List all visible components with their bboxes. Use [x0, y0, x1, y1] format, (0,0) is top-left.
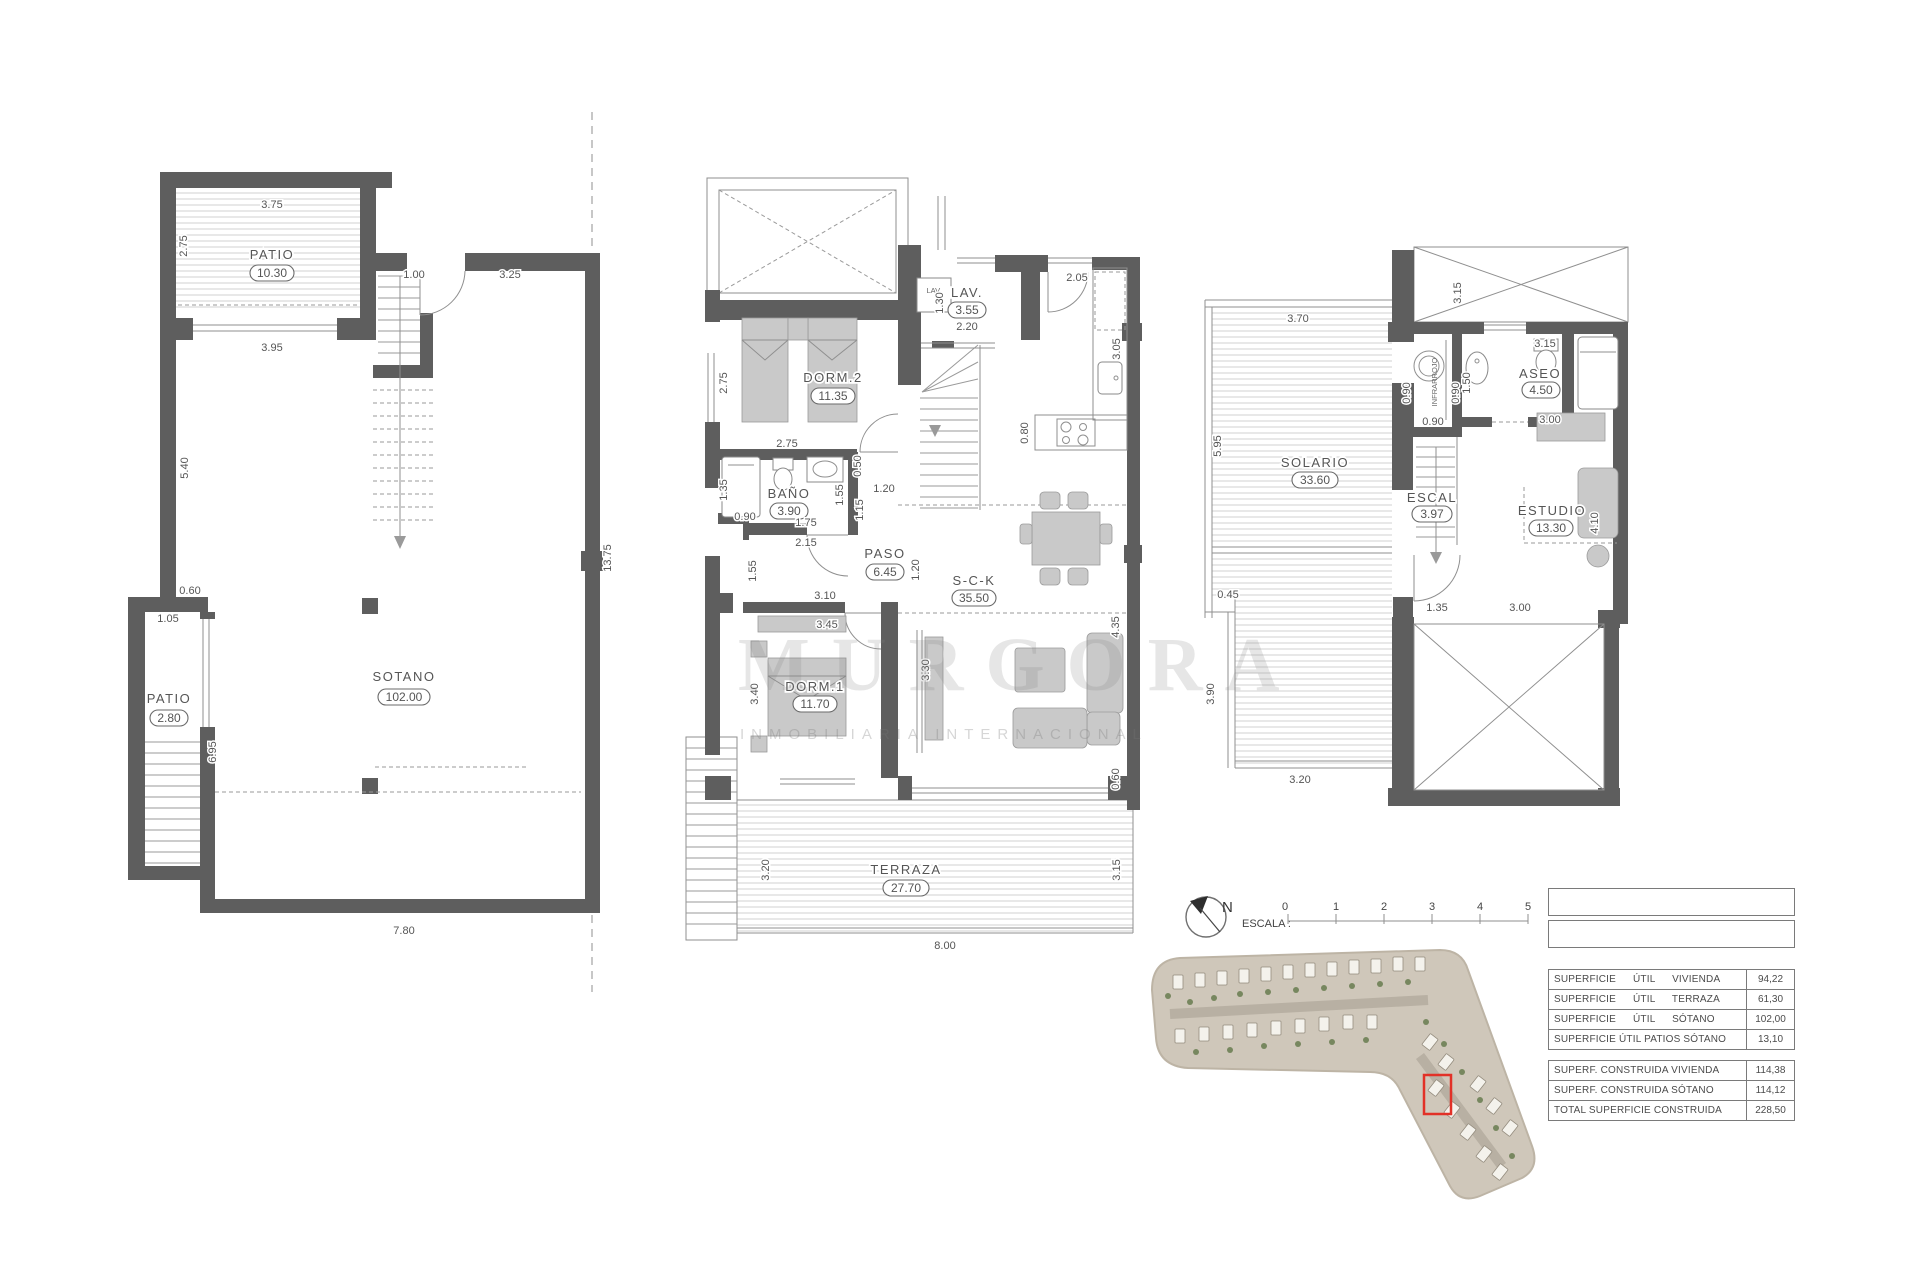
dim-label: 3.40	[749, 683, 761, 704]
sofa	[1013, 708, 1087, 748]
table-row: SUPERFICIE ÚTIL TERRAZA 61,30	[1549, 989, 1794, 1009]
table-row: SUPERF. CONSTRUIDA VIVIENDA 114,38	[1549, 1061, 1794, 1080]
room-value-paso: 6.45	[873, 565, 897, 579]
dim-label: 1.15	[854, 499, 866, 520]
dim-label: 2.75	[178, 235, 190, 256]
site-plan-area	[1152, 950, 1534, 1198]
row-value: 102,00	[1746, 1010, 1794, 1029]
row-label: SUPERFICIE ÚTIL SÓTANO	[1549, 1010, 1746, 1029]
dim-label: 0.50	[852, 455, 864, 476]
dim-label: 1.35	[1426, 602, 1447, 614]
room-value-sck: 35.50	[959, 591, 989, 605]
room-value-patio2: 2.80	[157, 711, 181, 725]
room-value-lav: 3.55	[955, 303, 979, 317]
baja-stairs	[920, 343, 995, 510]
floor-plan-planta-alta: INFRARROJO SOLARIO	[1205, 247, 1628, 806]
row-label: SUPERFICIE ÚTIL VIVIENDA	[1549, 970, 1746, 989]
dim-label: 13.75	[602, 544, 614, 572]
dim-label: 1.75	[795, 517, 816, 529]
scale-tick: 4	[1477, 901, 1483, 913]
built-area-table: SUPERF. CONSTRUIDA VIVIENDA 114,38 SUPER…	[1548, 1060, 1795, 1121]
dim-label: 3.15	[1452, 282, 1464, 303]
dim-label: 8.00	[934, 940, 955, 952]
row-value: 228,50	[1746, 1101, 1794, 1120]
row-value: 61,30	[1746, 990, 1794, 1009]
dim-label: 3.95	[261, 342, 282, 354]
room-value-estudio: 13.30	[1536, 521, 1566, 535]
sotano-guides	[215, 767, 581, 792]
room-label-escal: ESCAL	[1407, 490, 1457, 505]
dim-label: 3.75	[261, 199, 282, 211]
room-value-escal: 3.97	[1420, 507, 1444, 521]
compass-and-scale: N ESCALA : 0 1 2 3 4 5	[1186, 896, 1531, 937]
scale-tick: 1	[1333, 901, 1339, 913]
scale-tick: 0	[1282, 901, 1288, 913]
room-value-sotano: 102.00	[386, 690, 423, 704]
room-value-patio1: 10.30	[257, 266, 287, 280]
dim-label: 3.15	[1534, 338, 1555, 350]
row-label: SUPERFICIE ÚTIL TERRAZA	[1549, 990, 1746, 1009]
bed	[1578, 337, 1618, 409]
terraza-steps	[686, 748, 737, 924]
floor-plan-sotano: PATIO 10.30 SOTANO 102.00 PATIO 2.80 3.7…	[128, 112, 614, 992]
table-row: TOTAL SUPERFICIE CONSTRUIDA 228,50	[1549, 1100, 1794, 1120]
table-row: SUPERF. CONSTRUIDA SÓTANO 114,12	[1549, 1080, 1794, 1100]
dim-label: 0.90	[1422, 416, 1443, 428]
room-label-bano: BAÑO	[768, 486, 811, 501]
room-label-dorm2: DORM.2	[803, 370, 863, 385]
row-label: SUPERF. CONSTRUIDA SÓTANO	[1549, 1081, 1746, 1100]
floor-plan-sheet: PATIO 10.30 SOTANO 102.00 PATIO 2.80 3.7…	[0, 0, 1920, 1280]
scale-bar	[1288, 914, 1528, 924]
void-outline	[707, 178, 908, 305]
dim-label: 3.15	[1111, 859, 1123, 880]
stairs-direction-arrow	[394, 536, 406, 549]
dim-label: 2.15	[795, 537, 816, 549]
dim-label: 2.05	[1066, 272, 1087, 284]
scale-tick: 2	[1381, 901, 1387, 913]
room-label-patio1: PATIO	[250, 247, 295, 262]
dining-table	[1032, 512, 1100, 565]
dim-label: 1.00	[403, 269, 424, 281]
sotano-door-arc	[420, 271, 465, 315]
coffee-table	[1015, 648, 1065, 692]
dim-label: 0.90	[1401, 382, 1413, 403]
nightstand	[751, 736, 767, 752]
room-label-sck: S-C-K	[953, 573, 996, 588]
dim-label: 3.70	[1287, 313, 1308, 325]
dim-label: 4.35	[1110, 616, 1122, 637]
dim-label: 0.60	[1110, 768, 1122, 789]
room-label-terraza: TERRAZA	[870, 862, 941, 877]
dim-label: 3.90	[1205, 683, 1217, 704]
dim-label: 3.00	[1509, 602, 1530, 614]
dim-label: 7.80	[393, 925, 414, 937]
dim-label: 1.55	[747, 560, 759, 581]
dim-label: 3.30	[920, 659, 932, 680]
row-value: 114,12	[1746, 1081, 1794, 1100]
dim-label: 3.05	[1111, 338, 1123, 359]
alta-windows	[1457, 325, 1526, 545]
sotano-windows	[193, 325, 337, 727]
pouf	[1587, 545, 1609, 567]
dim-label: 3.20	[760, 859, 772, 880]
row-label: SUPERF. CONSTRUIDA VIVIENDA	[1549, 1061, 1746, 1080]
room-label-solario: SOLARIO	[1281, 455, 1349, 470]
room-label-paso: PASO	[864, 546, 905, 561]
floor-plan-planta-baja: LAV.	[686, 178, 1142, 952]
scale-label: ESCALA :	[1242, 918, 1291, 930]
lower-terrace-hatch	[1235, 597, 1392, 768]
north-label: N	[1222, 899, 1233, 916]
nightstand	[788, 318, 808, 340]
dim-label: 5.95	[1212, 435, 1224, 456]
room-label-estudio: ESTUDIO	[1518, 503, 1586, 518]
dim-label: 1.20	[873, 483, 894, 495]
lounge-chair	[1087, 712, 1120, 745]
solario-hatch	[1212, 307, 1392, 547]
room-label-aseo: ASEO	[1519, 366, 1561, 381]
row-value: 114,38	[1746, 1061, 1794, 1080]
dim-label: 0.45	[1217, 589, 1238, 601]
room-value-terraza: 27.70	[891, 881, 921, 895]
row-value: 13,10	[1746, 1030, 1794, 1049]
scale-tick: 3	[1429, 901, 1435, 913]
row-label: TOTAL SUPERFICIE CONSTRUIDA	[1549, 1101, 1746, 1120]
row-value: 94,22	[1746, 970, 1794, 989]
dim-label: 2.20	[956, 321, 977, 333]
dim-label: 1.05	[157, 613, 178, 625]
dim-label: 3.45	[816, 619, 837, 631]
dim-label: 2.75	[718, 372, 730, 393]
table-row: SUPERFICIE ÚTIL SÓTANO 102,00	[1549, 1009, 1794, 1029]
room-value-aseo: 4.50	[1529, 383, 1553, 397]
dim-label: 1.35	[718, 479, 730, 500]
title-box	[1548, 920, 1795, 948]
dim-label: 3.00	[1539, 414, 1560, 426]
dim-label: 5.40	[179, 457, 191, 478]
room-value-solario: 33.60	[1300, 473, 1330, 487]
room-label-dorm1: DORM.1	[785, 679, 845, 694]
dim-label: 4.10	[1589, 512, 1601, 533]
dim-label: 0.80	[1019, 422, 1031, 443]
room-label-lav: LAV.	[951, 285, 983, 300]
row-label: SUPERFICIE ÚTIL PATIOS SÓTANO	[1549, 1030, 1746, 1049]
room-label-patio2: PATIO	[147, 691, 192, 706]
sauna-label: INFRARROJO	[1430, 357, 1439, 406]
useful-area-table: SUPERFICIE ÚTIL VIVIENDA 94,22 SUPERFICI…	[1548, 969, 1795, 1050]
sofa	[1087, 633, 1123, 713]
room-value-bano: 3.90	[777, 504, 801, 518]
nightstand	[751, 641, 767, 657]
title-box	[1548, 888, 1795, 916]
dim-label: 1.50	[1461, 372, 1473, 393]
dim-label: 3.10	[814, 590, 835, 602]
room-label-sotano: SOTANO	[373, 669, 436, 684]
dim-label: 0.90	[734, 511, 755, 523]
room-value-dorm1: 11.70	[800, 697, 829, 711]
dim-label: 0.60	[179, 585, 200, 597]
dim-label: 3.25	[499, 269, 520, 281]
dim-label: 3.20	[1289, 774, 1310, 786]
dim-label: 1.55	[834, 484, 846, 505]
room-value-dorm2: 11.35	[818, 389, 847, 403]
void-cross	[719, 190, 896, 293]
table-row: SUPERFICIE ÚTIL PATIOS SÓTANO 13,10	[1549, 1029, 1794, 1049]
table-row: SUPERFICIE ÚTIL VIVIENDA 94,22	[1549, 970, 1794, 989]
bed	[742, 318, 788, 422]
patio2-stairs	[145, 742, 200, 863]
dim-label: 1.30	[934, 292, 946, 313]
dim-label: 6.95	[207, 741, 219, 762]
living-furniture	[925, 492, 1123, 748]
dim-label: 2.75	[776, 438, 797, 450]
dim-label: 1.20	[910, 559, 922, 580]
sideboard	[925, 637, 943, 740]
site-plan	[1152, 950, 1534, 1198]
scale-tick: 5	[1525, 901, 1531, 913]
